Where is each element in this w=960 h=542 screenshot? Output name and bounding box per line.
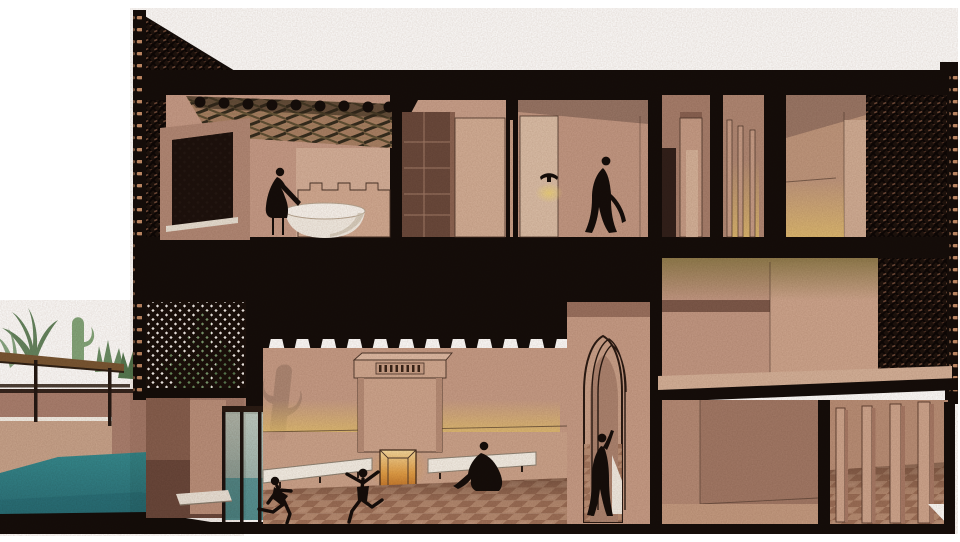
section-illustration xyxy=(0,0,960,542)
drawing-canvas xyxy=(0,0,960,542)
grain-overlay xyxy=(0,8,958,536)
